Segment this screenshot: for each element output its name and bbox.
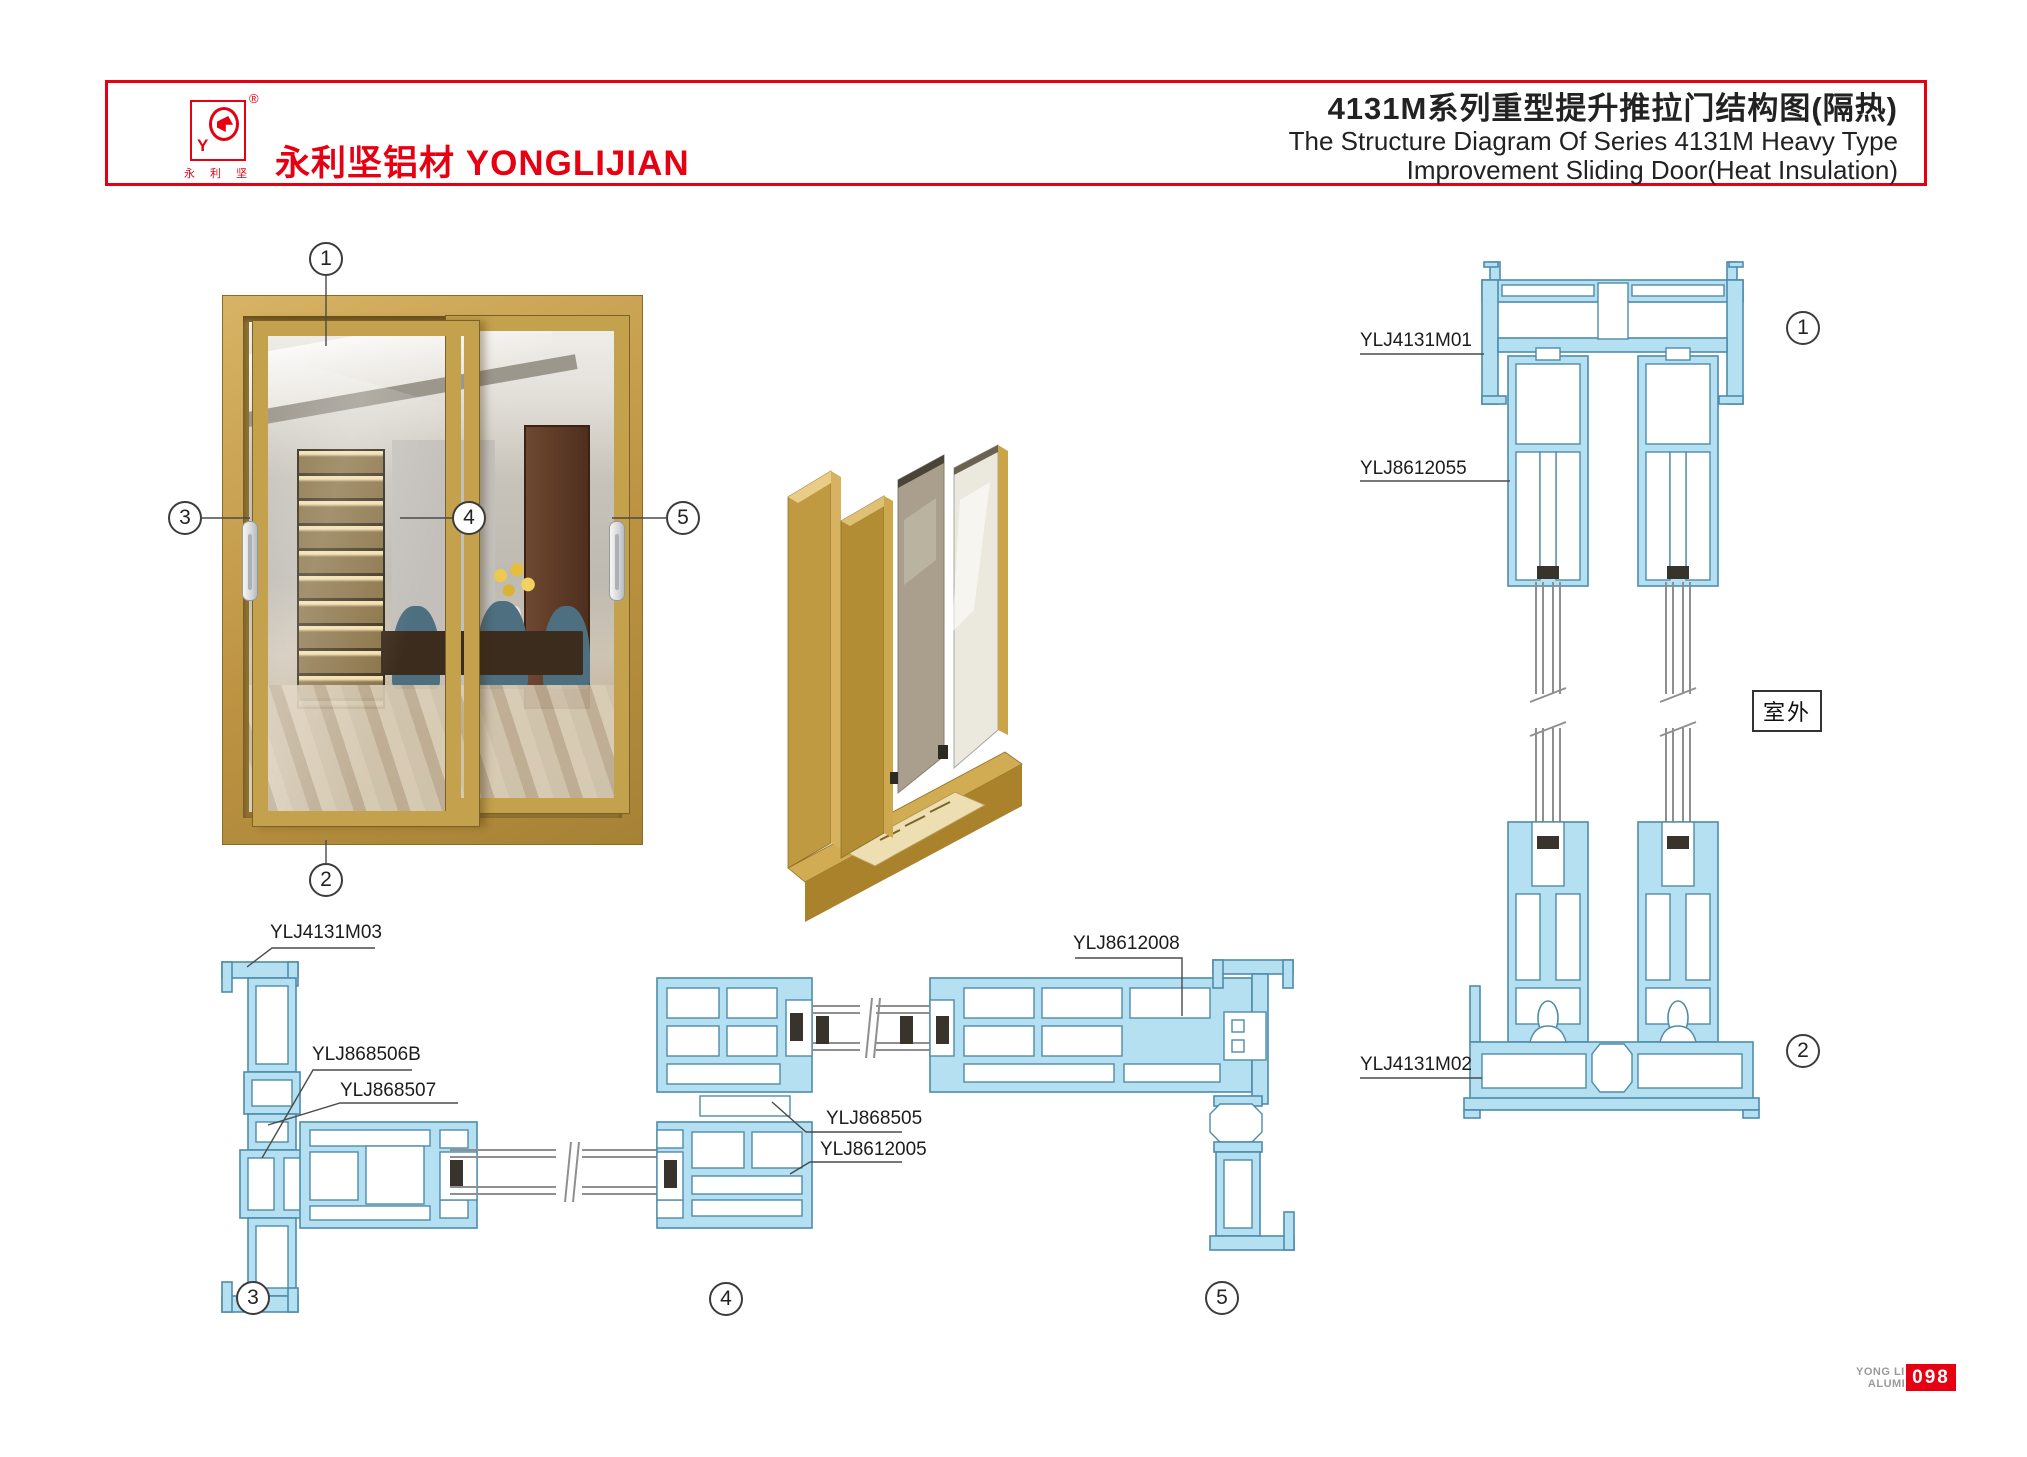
callout-section-5: 5	[1205, 1281, 1239, 1315]
vertical-section-drawing	[1464, 262, 1759, 1118]
right-door-handle	[609, 521, 625, 601]
label-head-frame: YLJ4131M01	[1360, 330, 1472, 352]
callout-section-4: 4	[709, 1282, 743, 1316]
callout-door-3: 3	[168, 501, 202, 535]
catalog-page: Y ® 永 利 坚 永利坚铝材 YONGLIJIAN 4131M系列重型提升推拉…	[0, 0, 2027, 1457]
header: Y ® 永 利 坚 永利坚铝材 YONGLIJIAN 4131M系列重型提升推拉…	[105, 80, 1927, 186]
callout-door-5: 5	[666, 501, 700, 535]
callout-section-1: 1	[1786, 311, 1820, 345]
callout-section-3: 3	[236, 1281, 270, 1315]
left-sash-frame	[253, 321, 479, 826]
glass-pane-lines	[1530, 582, 1696, 846]
profile-3d-render	[788, 445, 1022, 922]
page-title: 4131M系列重型提升推拉门结构图(隔热) The Structure Diag…	[1289, 91, 1898, 185]
brand-logo: Y	[190, 100, 246, 161]
registered-mark: ®	[249, 91, 259, 106]
logo-caption: 永 利 坚	[184, 165, 252, 181]
outdoor-tag: 室外	[1752, 690, 1822, 732]
section3-drawing	[222, 962, 314, 1312]
section3-plan-row	[300, 1122, 812, 1228]
label-sash-vertical: YLJ8612055	[1360, 458, 1467, 480]
left-door-handle	[242, 521, 258, 601]
label-corner-cover: YLJ868507	[340, 1080, 436, 1102]
label-sill-frame: YLJ4131M02	[1360, 1054, 1472, 1076]
label-jamb-profile: YLJ4131M03	[270, 922, 382, 944]
callout-section-2: 2	[1786, 1034, 1820, 1068]
label-lock-stile: YLJ8612008	[1073, 933, 1180, 955]
callout-door-4: 4	[452, 501, 486, 535]
callout-door-1: 1	[309, 242, 343, 276]
brand-name: 永利坚铝材 YONGLIJIAN	[275, 135, 690, 186]
label-sash-profile: YLJ8612005	[820, 1139, 927, 1161]
page-number-badge: 098	[1906, 1364, 1956, 1391]
label-interlock: YLJ868505	[826, 1108, 922, 1130]
brand-cn: 永利坚铝材	[275, 144, 455, 183]
logo-monogram: Y	[197, 136, 208, 156]
title-english-line2: Improvement Sliding Door(Heat Insulation…	[1289, 156, 1898, 185]
brand-en: YONGLIJIAN	[466, 144, 690, 183]
door-photo	[222, 295, 643, 845]
label-corner-block: YLJ868506B	[312, 1044, 421, 1066]
title-chinese: 4131M系列重型提升推拉门结构图(隔热)	[1289, 91, 1898, 127]
section4-5-plan-row	[657, 960, 1294, 1250]
title-english-line1: The Structure Diagram Of Series 4131M He…	[1289, 127, 1898, 156]
callout-door-2: 2	[309, 863, 343, 897]
